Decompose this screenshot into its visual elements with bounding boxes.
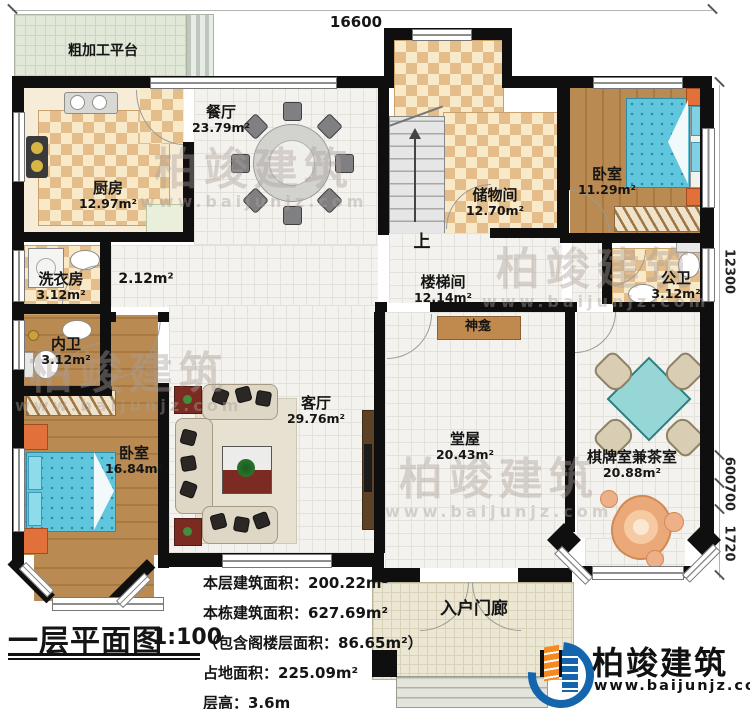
stat-footprint-area: 占地面积：225.09m² — [203, 662, 423, 683]
wall — [100, 240, 111, 310]
baijun-logo-icon — [528, 636, 590, 700]
room-area: 20.43m² — [436, 448, 494, 462]
side-table-plant — [183, 527, 192, 536]
stove-burner — [31, 160, 43, 172]
room-label-porch: 入户门廊 — [440, 600, 508, 619]
room-label-bedroom-left: 卧室 16.84m² — [105, 445, 163, 476]
room-name: 公卫 — [651, 270, 700, 287]
room-area: 2.12m² — [118, 272, 173, 288]
window — [13, 112, 25, 182]
room-name: 洗衣房 — [36, 271, 85, 288]
dining-chair — [283, 102, 302, 121]
room-area: 3.12m² — [36, 288, 85, 302]
title-underline — [8, 653, 200, 656]
window — [13, 448, 25, 532]
wall — [560, 233, 712, 243]
watermark-text: 柏竣建筑 — [140, 148, 367, 192]
window — [150, 77, 337, 89]
room-area: 3.12m² — [41, 353, 90, 367]
stairs-arrow-icon — [409, 128, 421, 139]
watermark-url: www.baijunjz.com — [140, 192, 367, 211]
wall — [100, 312, 116, 322]
pillow — [28, 456, 42, 490]
room-label-bedroom-top: 卧室 11.29m² — [578, 166, 636, 197]
room-area: 3.12m² — [651, 287, 700, 301]
stat-floor-area: 本层建筑面积：200.22m² — [203, 572, 423, 593]
room-label-living: 客厅 29.76m² — [287, 395, 345, 426]
title-underline — [8, 658, 200, 660]
wardrobe — [614, 206, 706, 232]
room-name: 楼梯间 — [414, 274, 472, 291]
pebble — [664, 512, 684, 532]
room-label-dining: 餐厅 23.79m² — [192, 104, 250, 135]
bay-window — [52, 597, 164, 611]
nightstand — [22, 424, 48, 450]
wall — [384, 28, 394, 88]
watermark-url: www.baijunjz.com — [385, 502, 612, 521]
room-name: 内卫 — [41, 336, 90, 353]
sofa-pillow — [255, 390, 272, 407]
watermark-text: 柏竣建筑 — [385, 458, 612, 502]
stairs-up-text: 上 — [414, 233, 431, 252]
room-area: 23.79m² — [192, 121, 250, 135]
room-area: 29.76m² — [287, 412, 345, 426]
wall — [378, 88, 389, 235]
room-label-stairwell: 楼梯间 12.14m² — [414, 274, 472, 305]
wall — [375, 302, 387, 312]
room-name: 卧室 — [105, 445, 163, 462]
nightstand — [22, 528, 48, 554]
dimension-tick — [707, 4, 718, 15]
dimension-top-label: 16600 — [330, 13, 382, 31]
room-area: 16.84m² — [105, 462, 163, 476]
wall — [374, 312, 385, 553]
stat-attic-area: （包含阁楼层面积：86.65m²） — [203, 632, 423, 653]
sink-bowl — [92, 95, 107, 110]
room-label-shrine: 神龛 — [465, 320, 491, 335]
wall — [518, 568, 572, 582]
dimension-right-seg: 1720 — [722, 522, 737, 566]
window — [222, 554, 332, 568]
logo-building-orange — [544, 645, 559, 682]
watermark-url: www.baijunjz.com — [15, 396, 242, 415]
light-fixture — [28, 330, 39, 341]
room-name: 神龛 — [465, 320, 491, 335]
room-area: 12.14m² — [414, 291, 472, 305]
pillow — [28, 492, 42, 526]
logo-website-text: www.baijunjz.com — [594, 678, 750, 694]
sofa-pillow — [233, 516, 250, 533]
wall — [158, 312, 169, 322]
room-label-public-bath: 公卫 3.12m² — [651, 270, 700, 301]
room-label-hall: 堂屋 20.43m² — [436, 431, 494, 462]
stairs-up-label: 上 — [414, 233, 431, 252]
stat-floor-height: 层高：3.6m — [203, 692, 423, 709]
window — [593, 77, 683, 89]
room-name: 卧室 — [578, 166, 636, 183]
wall — [12, 304, 111, 314]
sink-bowl — [70, 95, 85, 110]
room-label-laundry: 洗衣房 3.12m² — [36, 271, 85, 302]
room-label-rough-platform: 粗加工平台 — [68, 44, 138, 60]
wall — [12, 232, 184, 242]
room-name: 厨房 — [79, 180, 137, 197]
room-name: 客厅 — [287, 395, 345, 412]
room-area: 12.70m² — [466, 204, 524, 218]
right-dimension-line — [719, 85, 720, 578]
stove-burner — [31, 142, 43, 154]
stats-block: 本层建筑面积：200.22m² 本栋建筑面积：627.69m² （包含阁楼层面积… — [203, 572, 423, 709]
room-name: 餐厅 — [192, 104, 250, 121]
room-name: 棋牌室兼茶室 — [587, 449, 677, 466]
platform-hatch-strip — [186, 14, 214, 78]
room-name: 堂屋 — [436, 431, 494, 448]
room-label-chess-tea: 棋牌室兼茶室 20.88m² — [587, 449, 677, 480]
stat-building-area: 本栋建筑面积：627.69m² — [203, 602, 423, 623]
room-name: 入户门廊 — [440, 600, 508, 619]
wall — [490, 228, 560, 238]
dimension-right-seg: 700 — [722, 480, 737, 516]
room-area: 12.97m² — [79, 197, 137, 211]
room-label-storage: 储物间 12.70m² — [466, 187, 524, 218]
floor-plan-canvas: 16600 12300 600 700 1720 — [0, 0, 750, 709]
room-area: 20.88m² — [587, 466, 677, 480]
window — [412, 29, 472, 41]
watermark: 柏竣建筑 www.baijunjz.com — [385, 458, 612, 521]
room-label-hallway: 2.12m² — [118, 272, 173, 288]
wall — [502, 28, 512, 88]
watermark: 柏竣建筑 www.baijunjz.com — [140, 148, 367, 211]
room-name: 储物间 — [466, 187, 524, 204]
room-label-kitchen: 厨房 12.97m² — [79, 180, 137, 211]
tv — [364, 444, 372, 492]
room-label-inner-bath: 内卫 3.12m² — [41, 336, 90, 367]
stairs-direction-line — [414, 138, 416, 222]
bay-window — [592, 566, 684, 580]
window — [702, 128, 715, 208]
window — [13, 250, 25, 302]
dimension-tick — [7, 4, 18, 15]
room-area: 11.29m² — [578, 183, 636, 197]
wall — [560, 85, 570, 190]
decorative-stone-core — [633, 519, 649, 535]
room-name: 粗加工平台 — [68, 44, 138, 60]
sofa-pillow — [180, 455, 197, 472]
floor-storage-upper — [394, 40, 504, 118]
top-dimension-line — [12, 10, 712, 11]
logo-building-blue — [562, 650, 578, 692]
plant — [237, 459, 255, 477]
dimension-right-label: 12300 — [722, 240, 737, 304]
